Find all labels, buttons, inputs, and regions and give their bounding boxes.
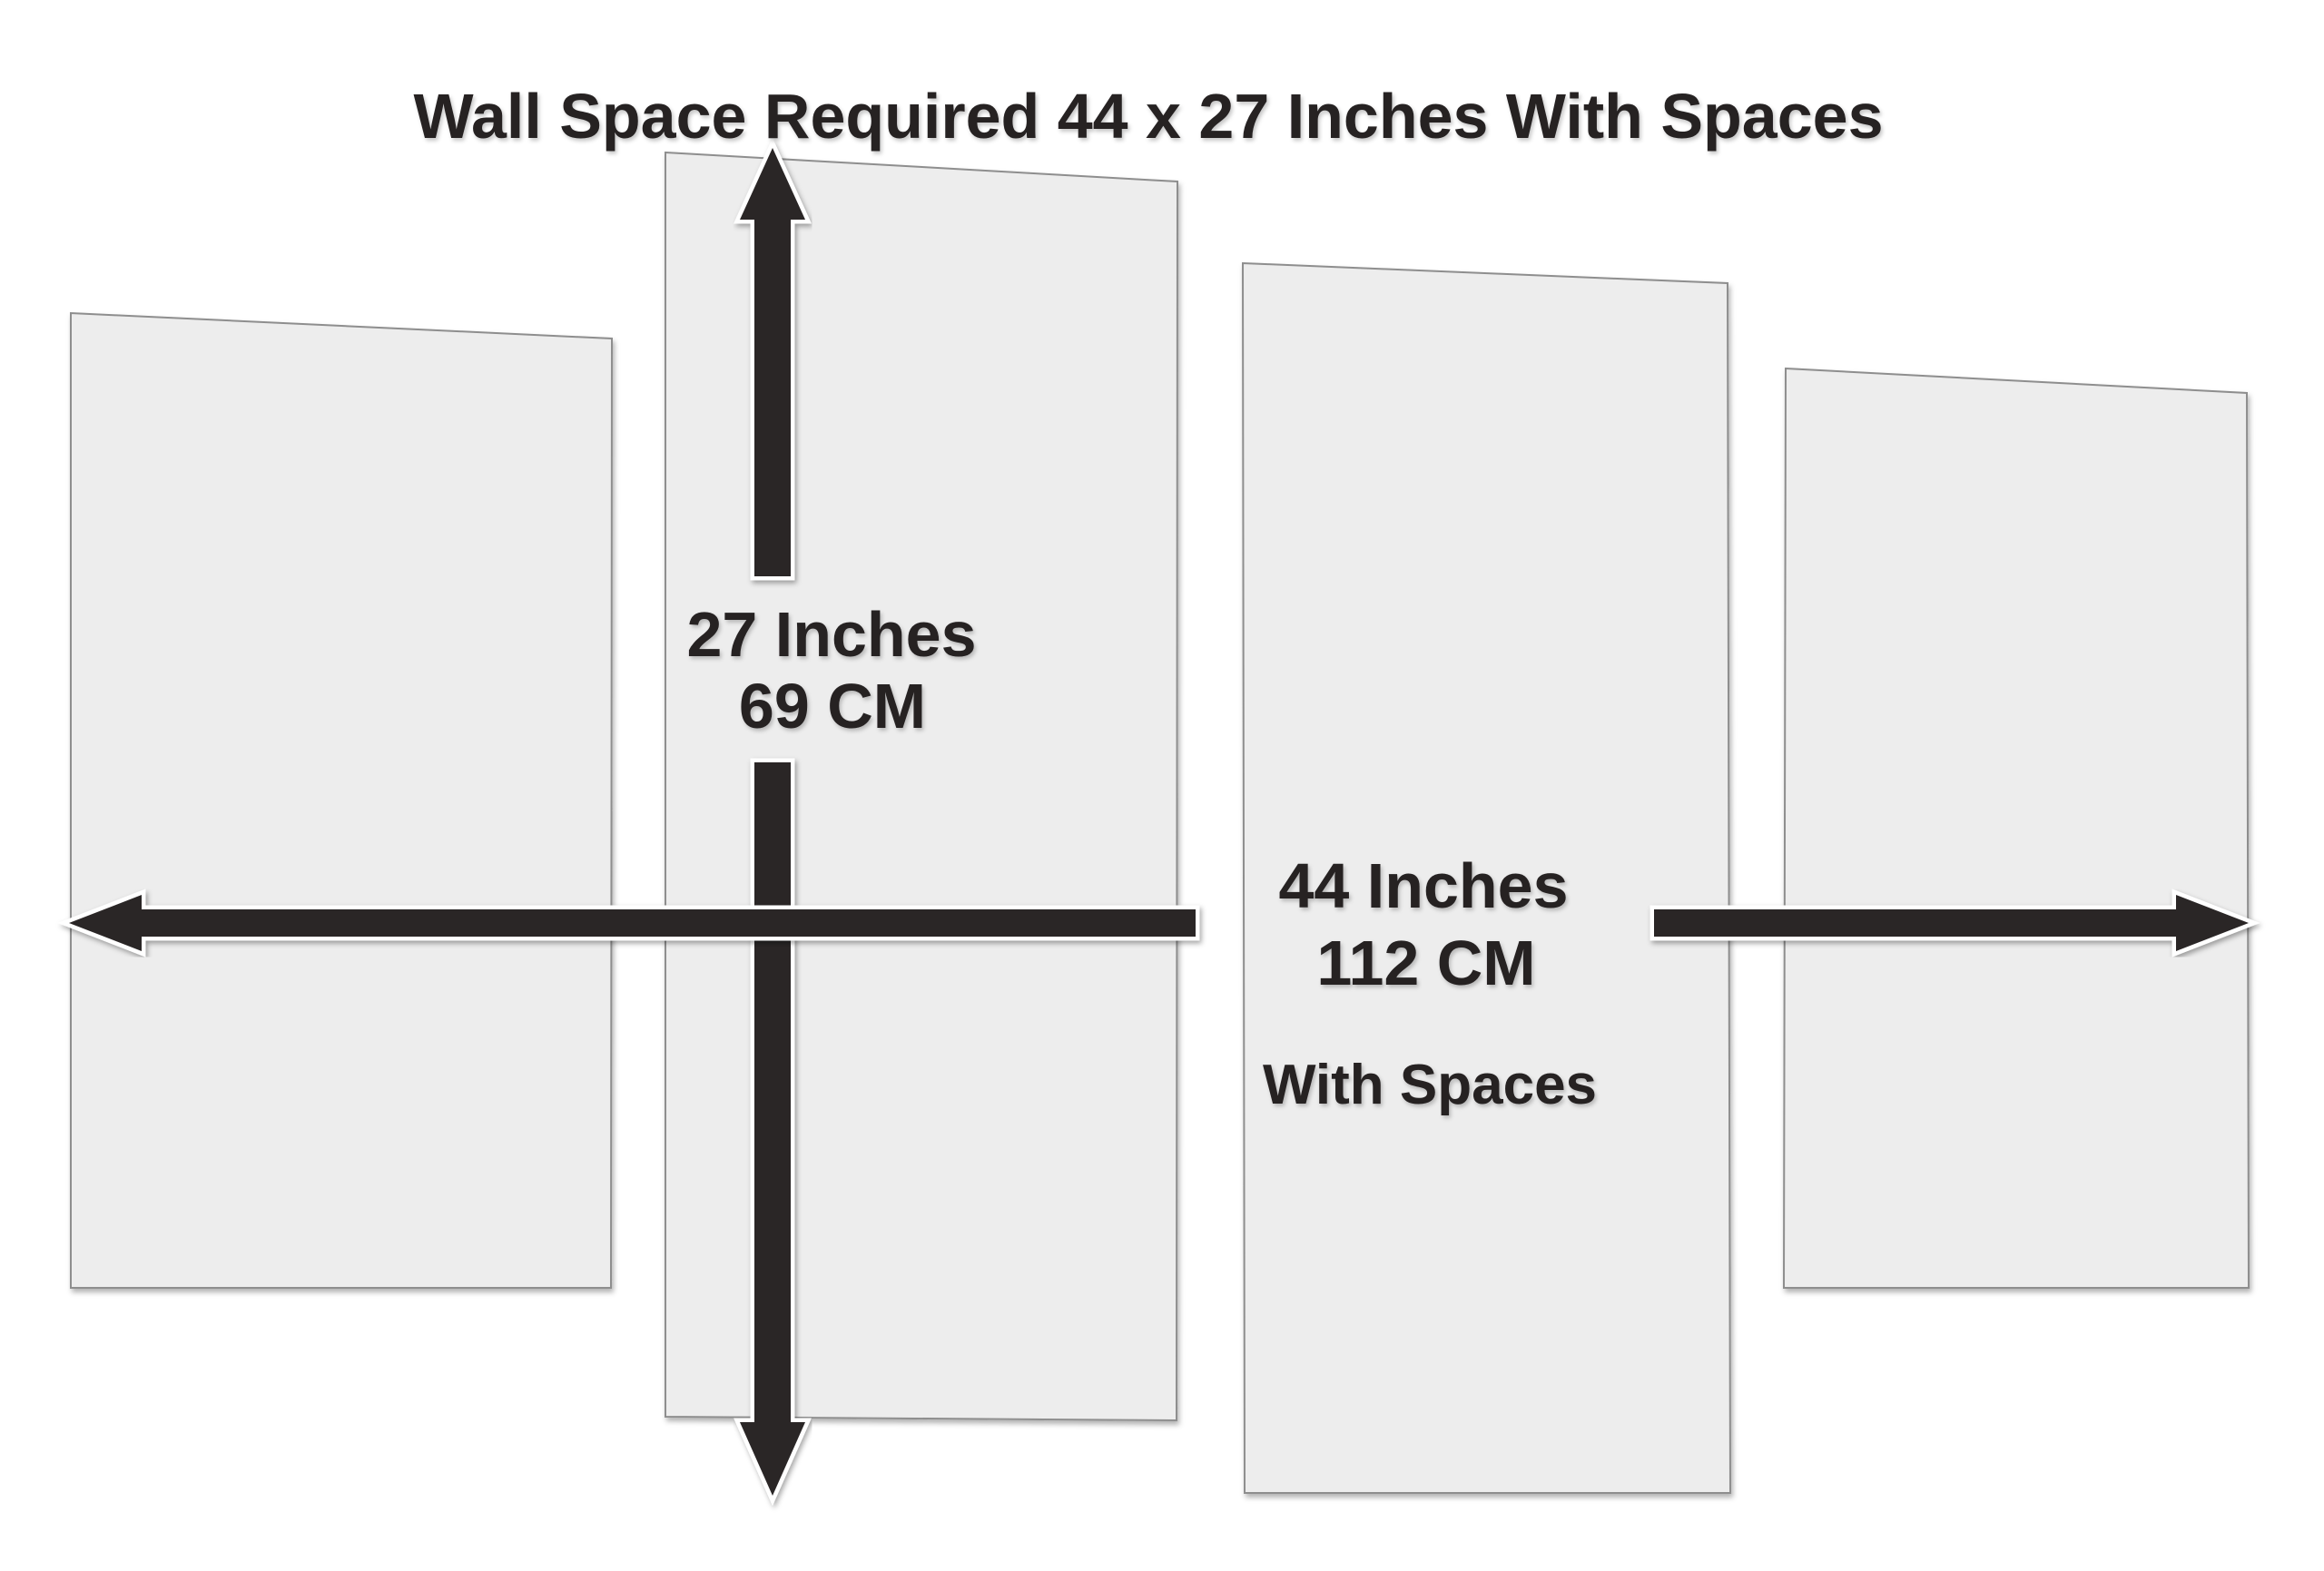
horizontal-dimension-cm-label: 112 CM: [1316, 928, 1535, 998]
wall-space-diagram: Wall Space Required 44 x 27 Inches With …: [0, 0, 2324, 1571]
canvas-panel-4: [1784, 368, 2249, 1288]
canvas-panel-2: [665, 152, 1177, 1420]
vertical-dimension-cm-label: 69 CM: [739, 671, 926, 741]
horizontal-dimension-inches-label: 44 Inches: [1278, 850, 1568, 921]
page-title: Wall Space Required 44 x 27 Inches With …: [413, 81, 1883, 152]
canvas-panels: [71, 152, 2249, 1493]
with-spaces-note: With Spaces: [1263, 1054, 1597, 1116]
vertical-dimension-inches-label: 27 Inches: [686, 599, 976, 670]
canvas-panel-1: [71, 313, 612, 1288]
